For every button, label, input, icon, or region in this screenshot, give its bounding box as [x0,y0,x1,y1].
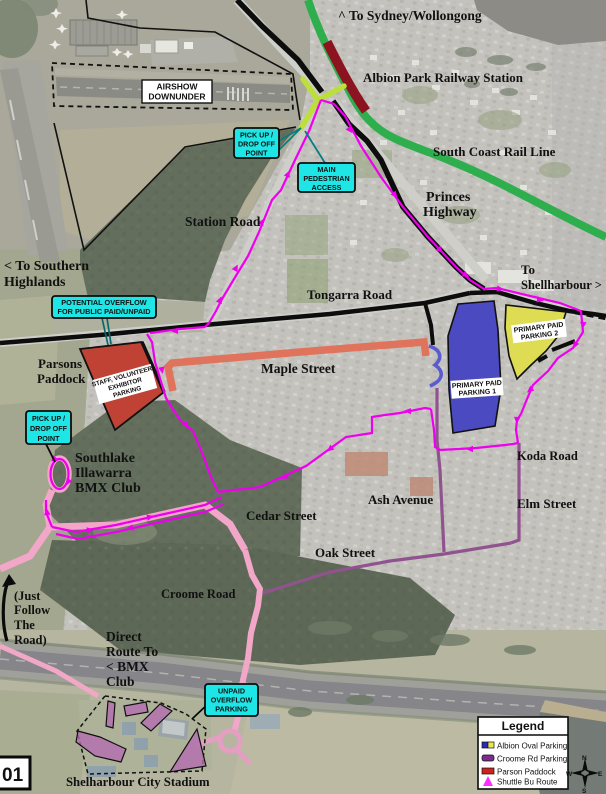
svg-text:DROP OFF: DROP OFF [238,140,276,149]
svg-text:AIRSHOW: AIRSHOW [156,82,198,92]
svg-text:Highway: Highway [423,205,477,220]
svg-text:POINT: POINT [38,434,61,443]
svg-text:MAIN: MAIN [317,165,335,174]
svg-text:PICK UP /: PICK UP / [240,131,273,140]
svg-text:UNPAID: UNPAID [218,687,245,696]
svg-text:Southlake: Southlake [75,451,135,466]
svg-text:W: W [566,771,573,778]
svg-text:Shellharbour >: Shellharbour > [521,278,602,292]
svg-text:Maple Street: Maple Street [261,361,336,376]
svg-text:Station Road: Station Road [185,214,261,229]
svg-text:Ash Avenue: Ash Avenue [368,492,433,507]
svg-text:PEDESTRIAN: PEDESTRIAN [303,174,349,183]
svg-text:PARKING: PARKING [215,705,248,714]
svg-text:N: N [582,755,587,762]
svg-text:BMX Club: BMX Club [75,481,141,496]
svg-text:S: S [582,788,587,794]
svg-text:Parsons: Parsons [38,356,82,371]
svg-text:Croome Road: Croome Road [161,587,235,601]
svg-text:ACCESS: ACCESS [312,183,342,192]
svg-text:Shuttle Bu Route: Shuttle Bu Route [497,778,558,787]
svg-text:Parson Paddock: Parson Paddock [497,768,557,777]
svg-text:Princes: Princes [426,190,471,205]
svg-text:Albion Oval Parking: Albion Oval Parking [497,742,567,751]
svg-text:FOR PUBLIC PAID/UNPAID: FOR PUBLIC PAID/UNPAID [58,307,151,316]
svg-text:Paddock: Paddock [37,371,86,386]
svg-text:Tongarra Road: Tongarra Road [307,287,393,302]
svg-text:Direct: Direct [106,629,142,644]
svg-text:DOWNUNDER: DOWNUNDER [148,92,205,102]
svg-text:Road): Road) [14,633,47,647]
svg-text:Albion Park Railway Station: Albion Park Railway Station [363,70,524,85]
svg-text:Shelharbour City Stadium: Shelharbour City Stadium [66,775,210,789]
svg-text:POTENTIAL OVERFLOW: POTENTIAL OVERFLOW [61,298,147,307]
svg-text:< To Southern: < To Southern [4,259,89,274]
svg-text:Highlands: Highlands [4,275,66,290]
svg-text:Croome Rd Parking: Croome Rd Parking [497,755,567,764]
svg-text:PICK UP /: PICK UP / [32,414,65,423]
svg-text:DROP OFF: DROP OFF [30,424,68,433]
svg-text:Follow: Follow [14,603,50,617]
svg-text:^ To Sydney/Wollongong: ^ To Sydney/Wollongong [338,8,482,23]
svg-text:Club: Club [106,674,135,689]
svg-text:To: To [521,262,535,277]
svg-text:Elm Street: Elm Street [517,496,577,511]
svg-text:E: E [598,771,603,778]
svg-text:< BMX: < BMX [106,659,149,674]
svg-text:OVERFLOW: OVERFLOW [211,696,253,705]
svg-text:Illawarra: Illawarra [75,466,132,481]
svg-text:POINT: POINT [246,149,269,158]
svg-text:01: 01 [2,765,24,786]
svg-text:(Just: (Just [14,589,41,603]
svg-text:Legend: Legend [502,719,545,733]
svg-text:Route To: Route To [106,644,158,659]
svg-text:South Coast Rail Line: South Coast Rail Line [433,144,556,159]
svg-text:The: The [14,618,35,632]
svg-text:Cedar Street: Cedar Street [246,508,317,523]
svg-text:Koda Road: Koda Road [517,449,578,463]
svg-text:Oak Street: Oak Street [315,545,376,560]
